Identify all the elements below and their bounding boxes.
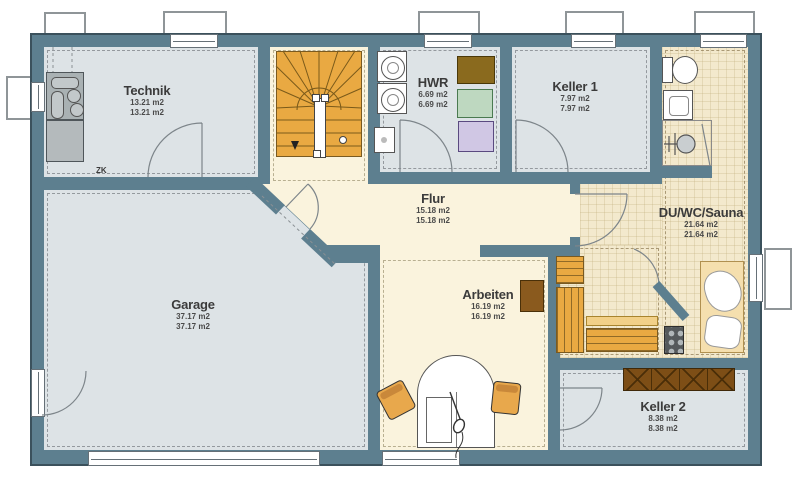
- wall-segment: [570, 237, 580, 257]
- heating-unit-icon: [46, 72, 84, 120]
- garage-side-door: [31, 369, 45, 417]
- shelf-unit-icon: [458, 121, 494, 152]
- stair-railing: [314, 98, 326, 158]
- window: [424, 34, 472, 48]
- heating-unit-base: [46, 120, 84, 162]
- shelf-unit-icon: [457, 56, 495, 84]
- cabinet-icon: [623, 368, 735, 391]
- wall-segment: [570, 184, 580, 194]
- lounger-icon: [700, 261, 744, 353]
- garage-door: [88, 451, 320, 466]
- office-chair-icon: [490, 381, 521, 416]
- stair-newel: [312, 94, 320, 102]
- wall-segment: [650, 165, 712, 178]
- room-duwcsauna: [580, 184, 662, 245]
- wall-segment: [452, 172, 516, 184]
- wall-segment: [650, 47, 662, 178]
- wall-segment: [368, 172, 398, 184]
- wall-segment: [548, 429, 560, 450]
- floor-plan: Technik 13.21 m2 13.21 m2 HWR 6.69 m2 6.…: [0, 0, 800, 482]
- toilet-bowl-icon: [672, 56, 698, 84]
- window: [382, 451, 460, 466]
- wall-segment: [258, 47, 270, 177]
- shelf-unit-icon: [457, 89, 493, 118]
- window: [700, 34, 747, 48]
- flur-arbeiten-opening: [380, 245, 480, 257]
- sauna-bench-icon: [556, 256, 584, 284]
- window: [170, 34, 218, 48]
- window: [749, 254, 763, 302]
- wall-segment: [500, 47, 512, 172]
- wall-segment: [368, 257, 380, 450]
- dryer-icon: [377, 83, 407, 114]
- sauna-heater-icon: [664, 326, 684, 354]
- wall-segment: [44, 177, 148, 190]
- light-well: [764, 248, 792, 310]
- sauna-bench-icon: [586, 316, 658, 326]
- stair-newel: [339, 136, 347, 144]
- stair-newel: [313, 150, 321, 158]
- sauna-bench-icon: [586, 328, 658, 352]
- window: [31, 82, 45, 112]
- shower-icon: [662, 120, 712, 166]
- window: [571, 34, 616, 48]
- stair-newel: [321, 94, 329, 102]
- sink-icon: [374, 127, 395, 153]
- cabinet-icon: [520, 280, 544, 312]
- annotation-zk: ZK: [96, 166, 126, 175]
- sink-icon: [663, 90, 693, 120]
- sauna-bench-icon: [556, 287, 584, 353]
- washing-machine-icon: [377, 51, 407, 82]
- wall-segment: [568, 172, 662, 184]
- desk-icon: [417, 355, 495, 448]
